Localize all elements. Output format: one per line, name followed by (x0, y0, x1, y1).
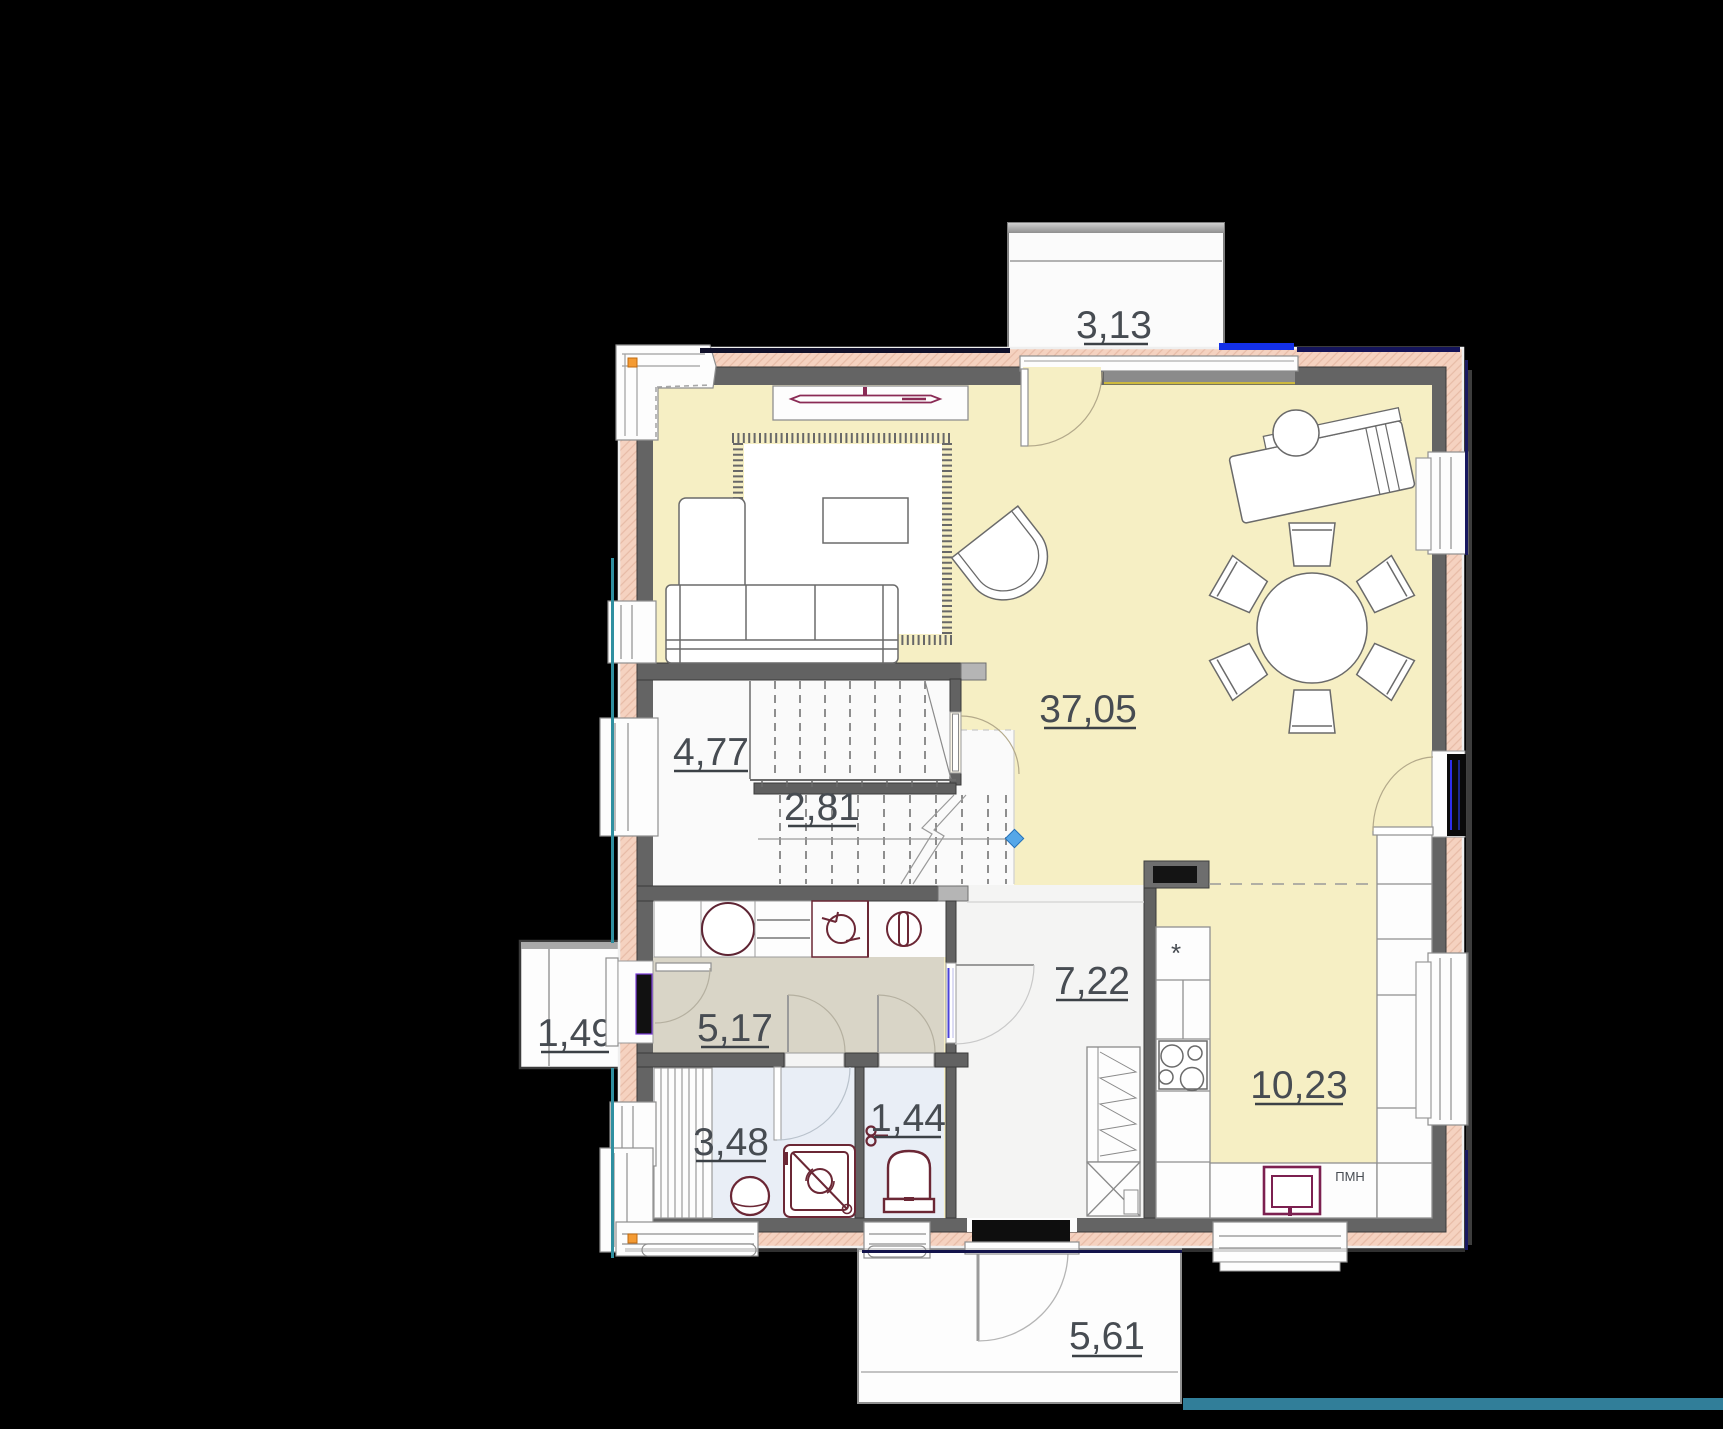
svg-text:37,05: 37,05 (1039, 688, 1137, 731)
svg-text:1,49: 1,49 (537, 1012, 613, 1055)
svg-text:3,13: 3,13 (1076, 304, 1152, 347)
svg-text:1,44: 1,44 (870, 1097, 946, 1140)
svg-text:*: * (1171, 938, 1181, 968)
svg-text:5,17: 5,17 (697, 1007, 773, 1050)
svg-text:7,22: 7,22 (1054, 960, 1130, 1003)
svg-text:5,61: 5,61 (1069, 1315, 1145, 1358)
svg-text:3,48: 3,48 (693, 1121, 769, 1164)
svg-text:ПМН: ПМН (1335, 1169, 1365, 1184)
svg-text:4,77: 4,77 (673, 731, 749, 774)
svg-text:10,23: 10,23 (1250, 1064, 1348, 1107)
svg-text:2,81: 2,81 (784, 786, 860, 829)
